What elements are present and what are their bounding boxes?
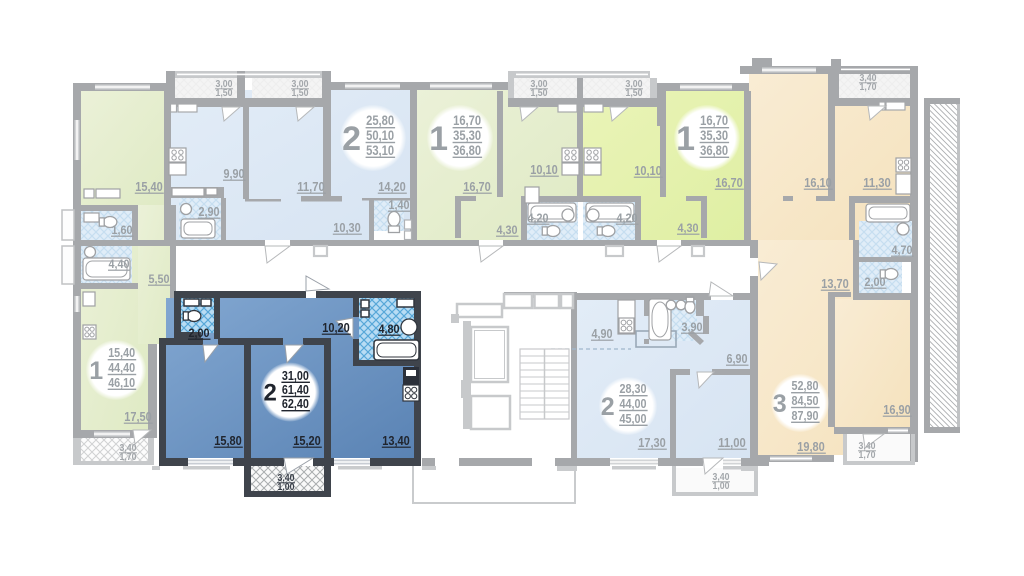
svg-text:1,50: 1,50 bbox=[626, 88, 643, 99]
svg-text:1,70: 1,70 bbox=[859, 450, 876, 461]
svg-text:50,10: 50,10 bbox=[366, 128, 394, 143]
svg-text:1,50: 1,50 bbox=[531, 88, 548, 99]
svg-text:17,30: 17,30 bbox=[638, 435, 666, 450]
svg-text:6,90: 6,90 bbox=[727, 351, 748, 366]
svg-text:1,50: 1,50 bbox=[216, 88, 233, 99]
svg-text:1: 1 bbox=[429, 120, 448, 158]
svg-text:28,30: 28,30 bbox=[620, 381, 647, 396]
svg-text:61,40: 61,40 bbox=[282, 382, 309, 397]
svg-text:84,50: 84,50 bbox=[792, 393, 819, 408]
svg-text:53,10: 53,10 bbox=[366, 143, 394, 158]
svg-text:15,40: 15,40 bbox=[135, 179, 163, 194]
svg-text:1: 1 bbox=[676, 120, 695, 158]
svg-text:45,00: 45,00 bbox=[620, 411, 647, 426]
svg-text:46,10: 46,10 bbox=[108, 375, 135, 390]
svg-text:4,20: 4,20 bbox=[617, 211, 638, 225]
svg-text:13,40: 13,40 bbox=[382, 433, 410, 448]
svg-text:16,10: 16,10 bbox=[804, 175, 832, 190]
svg-text:44,40: 44,40 bbox=[108, 360, 135, 375]
svg-text:44,00: 44,00 bbox=[620, 396, 647, 411]
svg-text:2: 2 bbox=[601, 393, 615, 421]
svg-text:2,90: 2,90 bbox=[199, 204, 220, 219]
svg-text:35,30: 35,30 bbox=[700, 128, 728, 143]
svg-text:1,50: 1,50 bbox=[292, 88, 309, 99]
svg-text:4,20: 4,20 bbox=[528, 211, 549, 225]
svg-text:4,80: 4,80 bbox=[379, 322, 400, 336]
svg-text:31,00: 31,00 bbox=[282, 368, 309, 383]
svg-text:35,30: 35,30 bbox=[453, 128, 481, 143]
svg-text:10,10: 10,10 bbox=[634, 163, 662, 178]
svg-text:1,00: 1,00 bbox=[278, 482, 295, 493]
svg-text:16,70: 16,70 bbox=[715, 175, 743, 190]
svg-text:16,70: 16,70 bbox=[463, 179, 491, 194]
svg-text:4,90: 4,90 bbox=[592, 326, 613, 341]
svg-text:10,20: 10,20 bbox=[322, 320, 350, 335]
svg-text:4,40: 4,40 bbox=[109, 257, 130, 271]
svg-text:15,80: 15,80 bbox=[214, 433, 242, 448]
svg-text:17,50: 17,50 bbox=[124, 409, 152, 424]
svg-text:16,70: 16,70 bbox=[700, 113, 728, 128]
svg-text:3,90: 3,90 bbox=[682, 320, 703, 334]
svg-text:1,40: 1,40 bbox=[389, 198, 410, 212]
svg-text:4,30: 4,30 bbox=[497, 223, 518, 237]
svg-text:13,70: 13,70 bbox=[821, 276, 849, 291]
svg-text:9,90: 9,90 bbox=[224, 166, 245, 181]
svg-text:11,70: 11,70 bbox=[297, 179, 325, 194]
svg-text:10,30: 10,30 bbox=[333, 220, 361, 235]
svg-text:87,90: 87,90 bbox=[792, 408, 819, 423]
svg-text:1,70: 1,70 bbox=[860, 82, 877, 93]
svg-text:15,20: 15,20 bbox=[293, 433, 321, 448]
svg-text:3: 3 bbox=[773, 390, 787, 418]
svg-text:1,00: 1,00 bbox=[713, 481, 730, 492]
svg-text:11,30: 11,30 bbox=[863, 175, 891, 190]
svg-text:36,80: 36,80 bbox=[453, 143, 481, 158]
svg-text:19,80: 19,80 bbox=[797, 439, 825, 454]
svg-text:5,50: 5,50 bbox=[149, 272, 170, 286]
svg-text:16,70: 16,70 bbox=[453, 113, 481, 128]
svg-text:2: 2 bbox=[342, 120, 361, 158]
svg-text:2,00: 2,00 bbox=[865, 275, 886, 289]
svg-text:62,40: 62,40 bbox=[282, 396, 309, 411]
svg-text:16,90: 16,90 bbox=[883, 402, 911, 417]
svg-text:36,80: 36,80 bbox=[700, 143, 728, 158]
svg-text:52,80: 52,80 bbox=[792, 378, 819, 393]
svg-text:11,00: 11,00 bbox=[718, 435, 746, 450]
svg-text:10,10: 10,10 bbox=[530, 162, 558, 177]
svg-text:4,70: 4,70 bbox=[892, 243, 913, 257]
svg-text:1: 1 bbox=[89, 357, 103, 385]
svg-text:2,00: 2,00 bbox=[189, 326, 210, 340]
svg-text:14,20: 14,20 bbox=[378, 179, 406, 194]
svg-text:25,80: 25,80 bbox=[366, 113, 394, 128]
svg-text:15,40: 15,40 bbox=[108, 345, 135, 360]
svg-text:1,70: 1,70 bbox=[120, 452, 137, 463]
svg-text:4,30: 4,30 bbox=[678, 221, 699, 235]
svg-text:1,60: 1,60 bbox=[112, 223, 133, 237]
svg-text:2: 2 bbox=[264, 380, 277, 407]
